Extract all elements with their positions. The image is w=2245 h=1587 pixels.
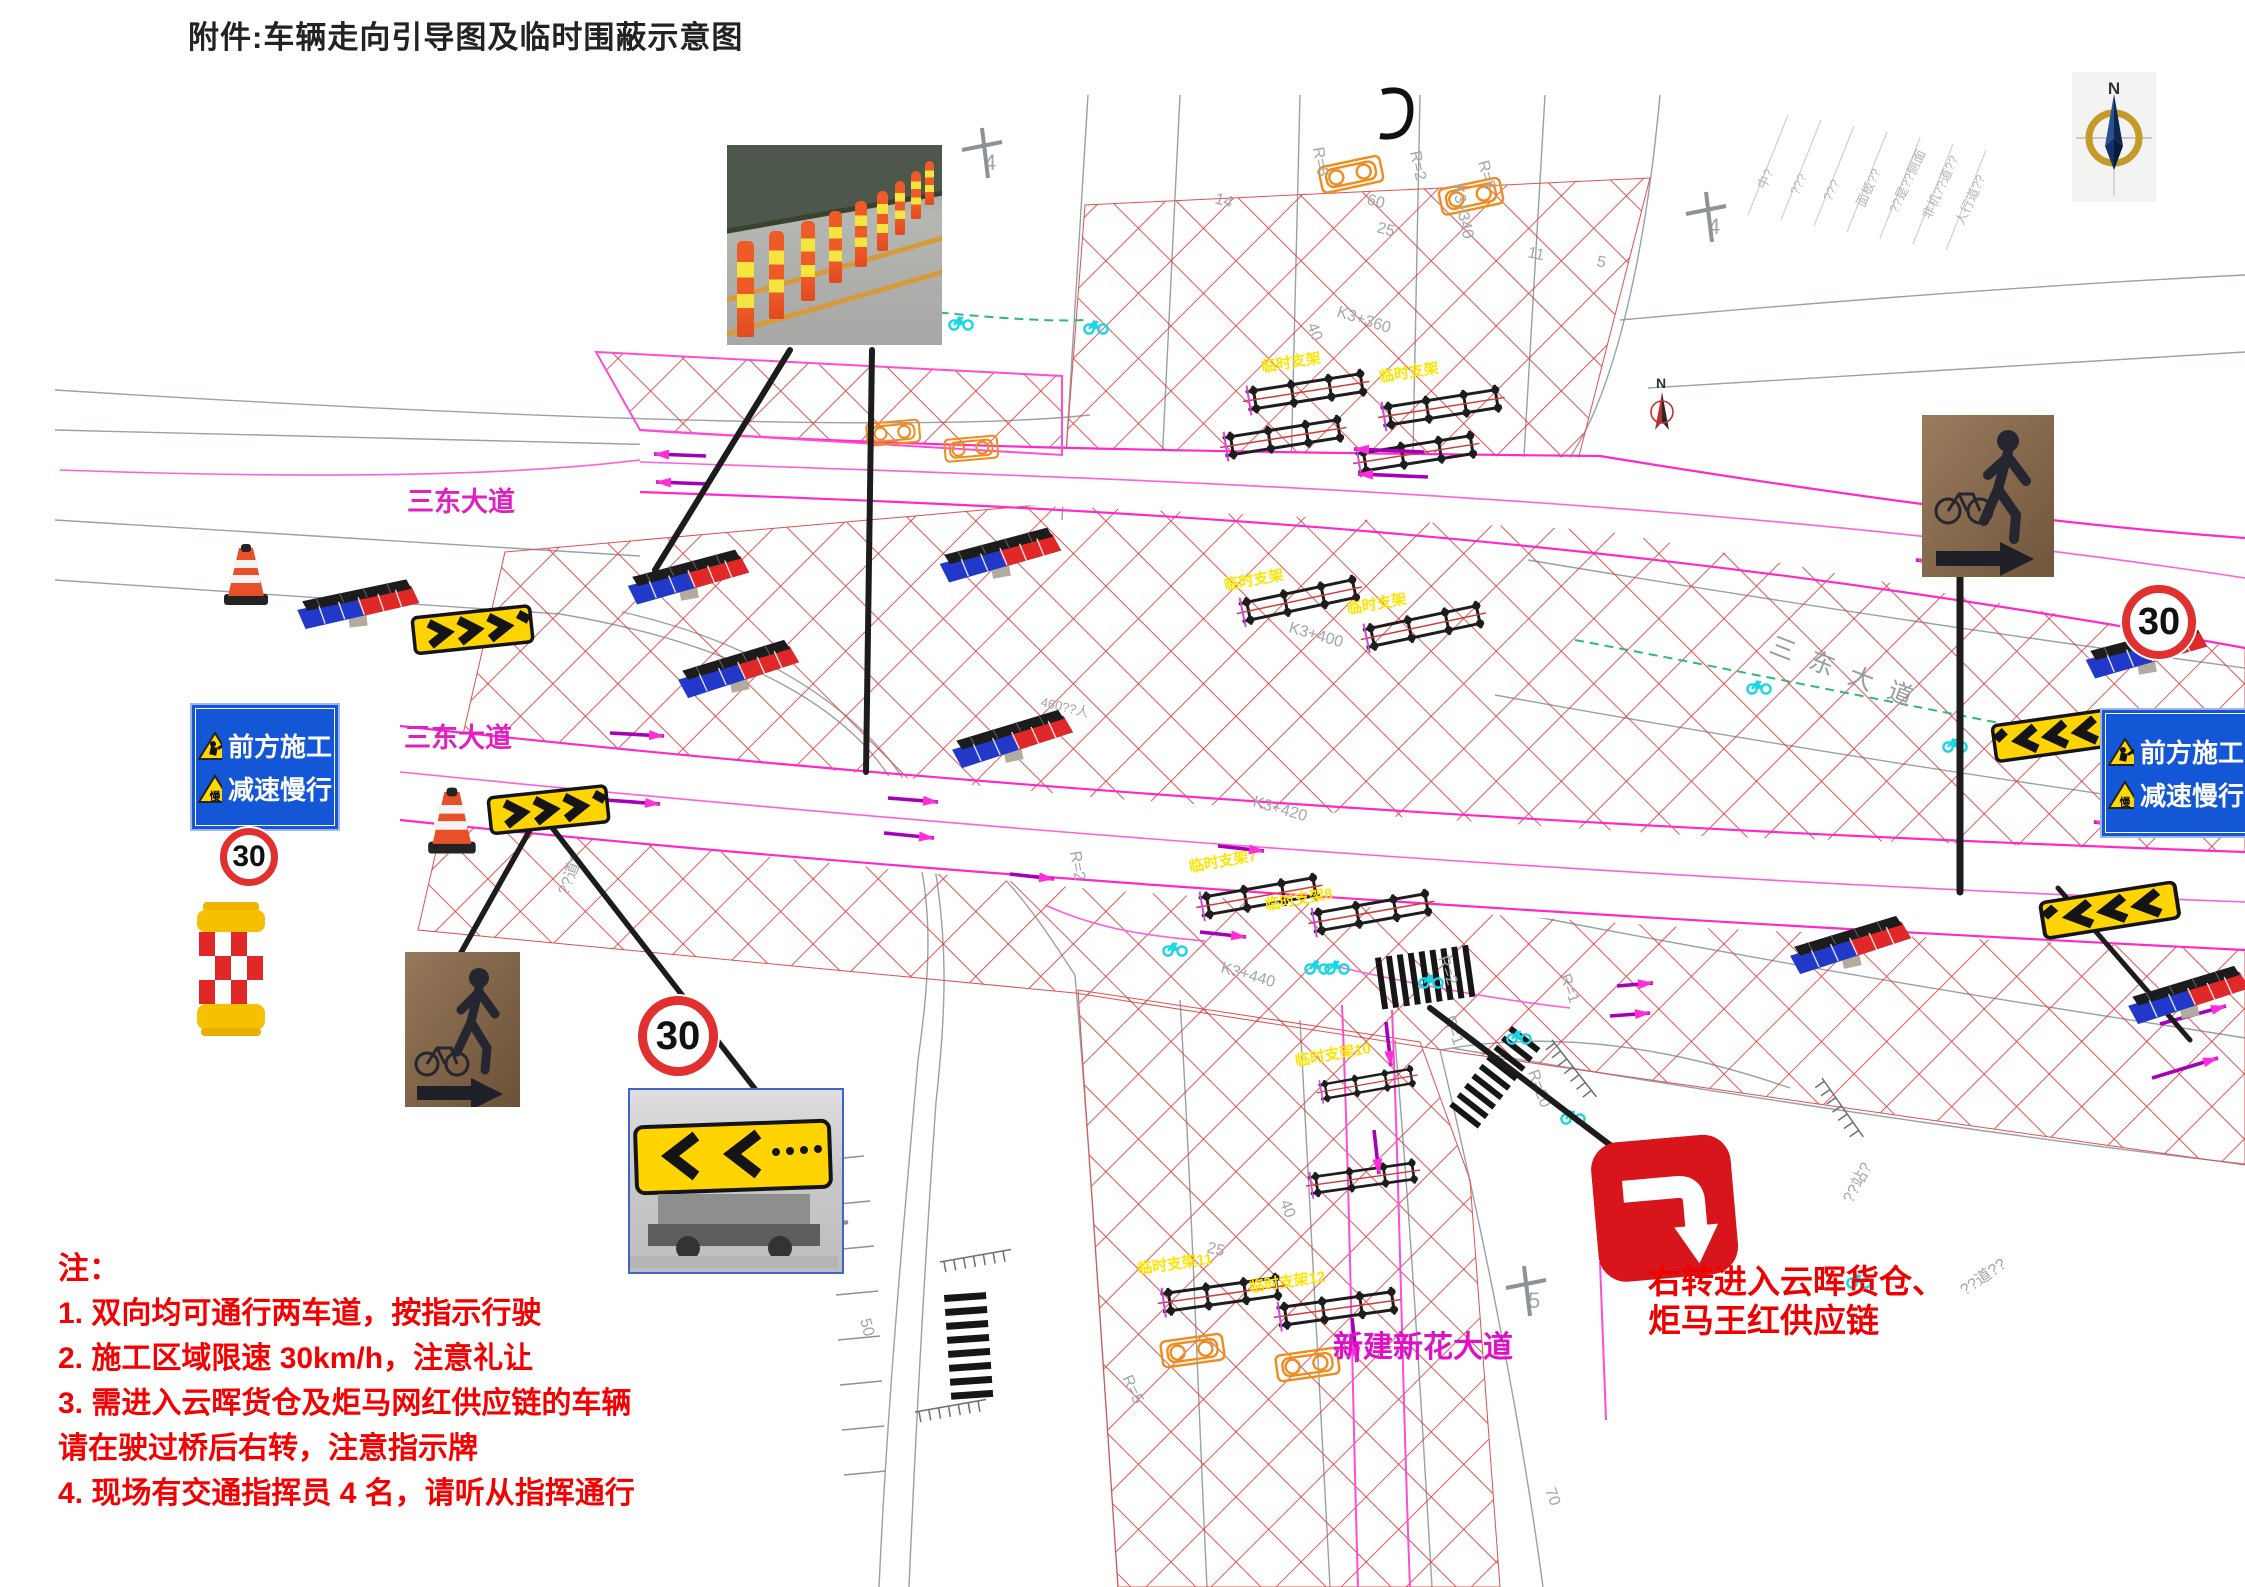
cad-label: ??道?? xyxy=(1957,1255,2010,1299)
legend-line: ??是??侧面 xyxy=(1886,147,1928,215)
delineator-post xyxy=(737,241,754,337)
delineator-post xyxy=(855,201,867,267)
traffic-cone xyxy=(224,544,268,605)
worker-warning-icon xyxy=(2108,737,2134,767)
speed-limit-value: 30 xyxy=(2138,601,2180,644)
note-item-3b: 请在驶过桥后右转，注意指示牌 xyxy=(58,1426,635,1471)
sign-text-slow: 减速慢行 xyxy=(228,770,332,807)
notes-block: 注： 1. 双向均可通行两车道，按指示行驶 2. 施工区域限速 30km/h，注… xyxy=(58,1246,635,1516)
arrow-board-photo xyxy=(628,1088,844,1274)
delineator-posts-photo xyxy=(727,145,942,345)
delineator-post xyxy=(911,171,921,219)
right-turn-label-line2: 炬马王红供应链 xyxy=(1648,1301,1945,1340)
delineator-post xyxy=(829,211,842,283)
sidewalk-comb xyxy=(915,1399,988,1422)
sidewalk-comb xyxy=(940,1249,1013,1272)
legend-line: 人行道?? xyxy=(1952,172,1988,227)
construction-warning-sign-left: 前方施工 慢 减速慢行 xyxy=(190,703,340,831)
road-label-xinhua: 新建新花大道 xyxy=(1333,1322,1513,1366)
cad-mark-top xyxy=(1380,90,1410,136)
speed-limit-value: 30 xyxy=(232,840,265,874)
pedestrian-bicycle-sign-graphic xyxy=(405,952,520,1107)
crosswalk-south xyxy=(944,1292,993,1400)
legend-line: 中? xyxy=(1754,167,1776,192)
construction-warning-sign-right: 前方施工 慢 减速慢行 xyxy=(2100,708,2245,838)
page-title: 附件:车辆走向引导图及临时围蔽示意图 xyxy=(188,12,743,57)
pedestrian-bicycle-sign-left xyxy=(405,952,520,1107)
compass-small: N xyxy=(1651,375,1673,430)
slow-warning-icon: 慢 xyxy=(198,774,222,804)
cad-legend: 中? ??? ??? 面板?? ??是??侧面 非机??道?? 人行道?? xyxy=(1748,115,1988,250)
note-item-2: 2. 施工区域限速 30km/h，注意礼让 xyxy=(58,1336,635,1381)
cad-label: R=5 xyxy=(1309,146,1331,178)
note-item-1: 1. 双向均可通行两车道，按指示行驶 xyxy=(58,1291,635,1336)
pedestrian-bicycle-sign-graphic xyxy=(1922,415,2054,577)
delineator-post xyxy=(877,191,888,251)
cad-label: ??站? xyxy=(1840,1160,1876,1206)
crash-barrel xyxy=(193,902,269,1038)
cad-label: 70 xyxy=(1541,1486,1563,1509)
right-turn-label-line1: 右转进入云晖货仓、 xyxy=(1648,1262,1945,1301)
compass-graphic: N xyxy=(2072,72,2156,202)
legend-line: 面板?? xyxy=(1853,166,1884,209)
speed-limit-30-sign-center: 30 xyxy=(638,996,718,1076)
notes-heading: 注： xyxy=(58,1246,635,1291)
slow-warning-icon: 慢 xyxy=(2108,780,2134,810)
bicycle-icon xyxy=(949,318,972,330)
warning-light-bar xyxy=(295,578,421,634)
speed-limit-30-sign-left: 30 xyxy=(220,828,278,886)
road-label-sandong-upper: 三东大道 xyxy=(407,480,515,519)
speed-limit-30-sign-right: 30 xyxy=(2122,585,2196,659)
delineator-post xyxy=(769,231,784,319)
sign-text-slow: 减速慢行 xyxy=(2140,776,2244,813)
legend-line: ??? xyxy=(1787,171,1810,197)
worker-warning-icon xyxy=(198,731,222,761)
svg-text:慢: 慢 xyxy=(210,789,222,803)
pedestrian-bicycle-sign-right xyxy=(1922,415,2054,577)
crash-barrel-graphic xyxy=(193,902,269,1038)
road-label-sandong-lower: 三东大道 xyxy=(404,716,512,755)
sign-text-construction: 前方施工 xyxy=(228,727,332,764)
svg-text:慢: 慢 xyxy=(2120,795,2132,809)
legend-line: 非机??道?? xyxy=(1919,153,1961,221)
cad-label: R=2 xyxy=(1406,149,1429,182)
right-turn-label: 右转进入云晖货仓、 炬马王红供应链 xyxy=(1648,1262,1945,1340)
sign-text-construction: 前方施工 xyxy=(2140,733,2244,770)
note-item-3: 3. 需进入云晖货仓及炬马网红供应链的车辆 xyxy=(58,1381,635,1426)
cad-label: 50 xyxy=(856,1317,877,1339)
note-item-4: 4. 现场有交通指挥员 4 名，请听从指挥通行 xyxy=(58,1471,635,1516)
delineator-post xyxy=(925,161,934,205)
compass-north: N xyxy=(2072,72,2156,202)
compass-small-label: N xyxy=(1656,375,1666,391)
delineator-post xyxy=(895,181,905,235)
delineator-post xyxy=(801,221,815,301)
legend-line: ??? xyxy=(1820,177,1843,203)
arrow-board-graphic xyxy=(630,1090,838,1268)
speed-limit-value: 30 xyxy=(656,1014,701,1059)
